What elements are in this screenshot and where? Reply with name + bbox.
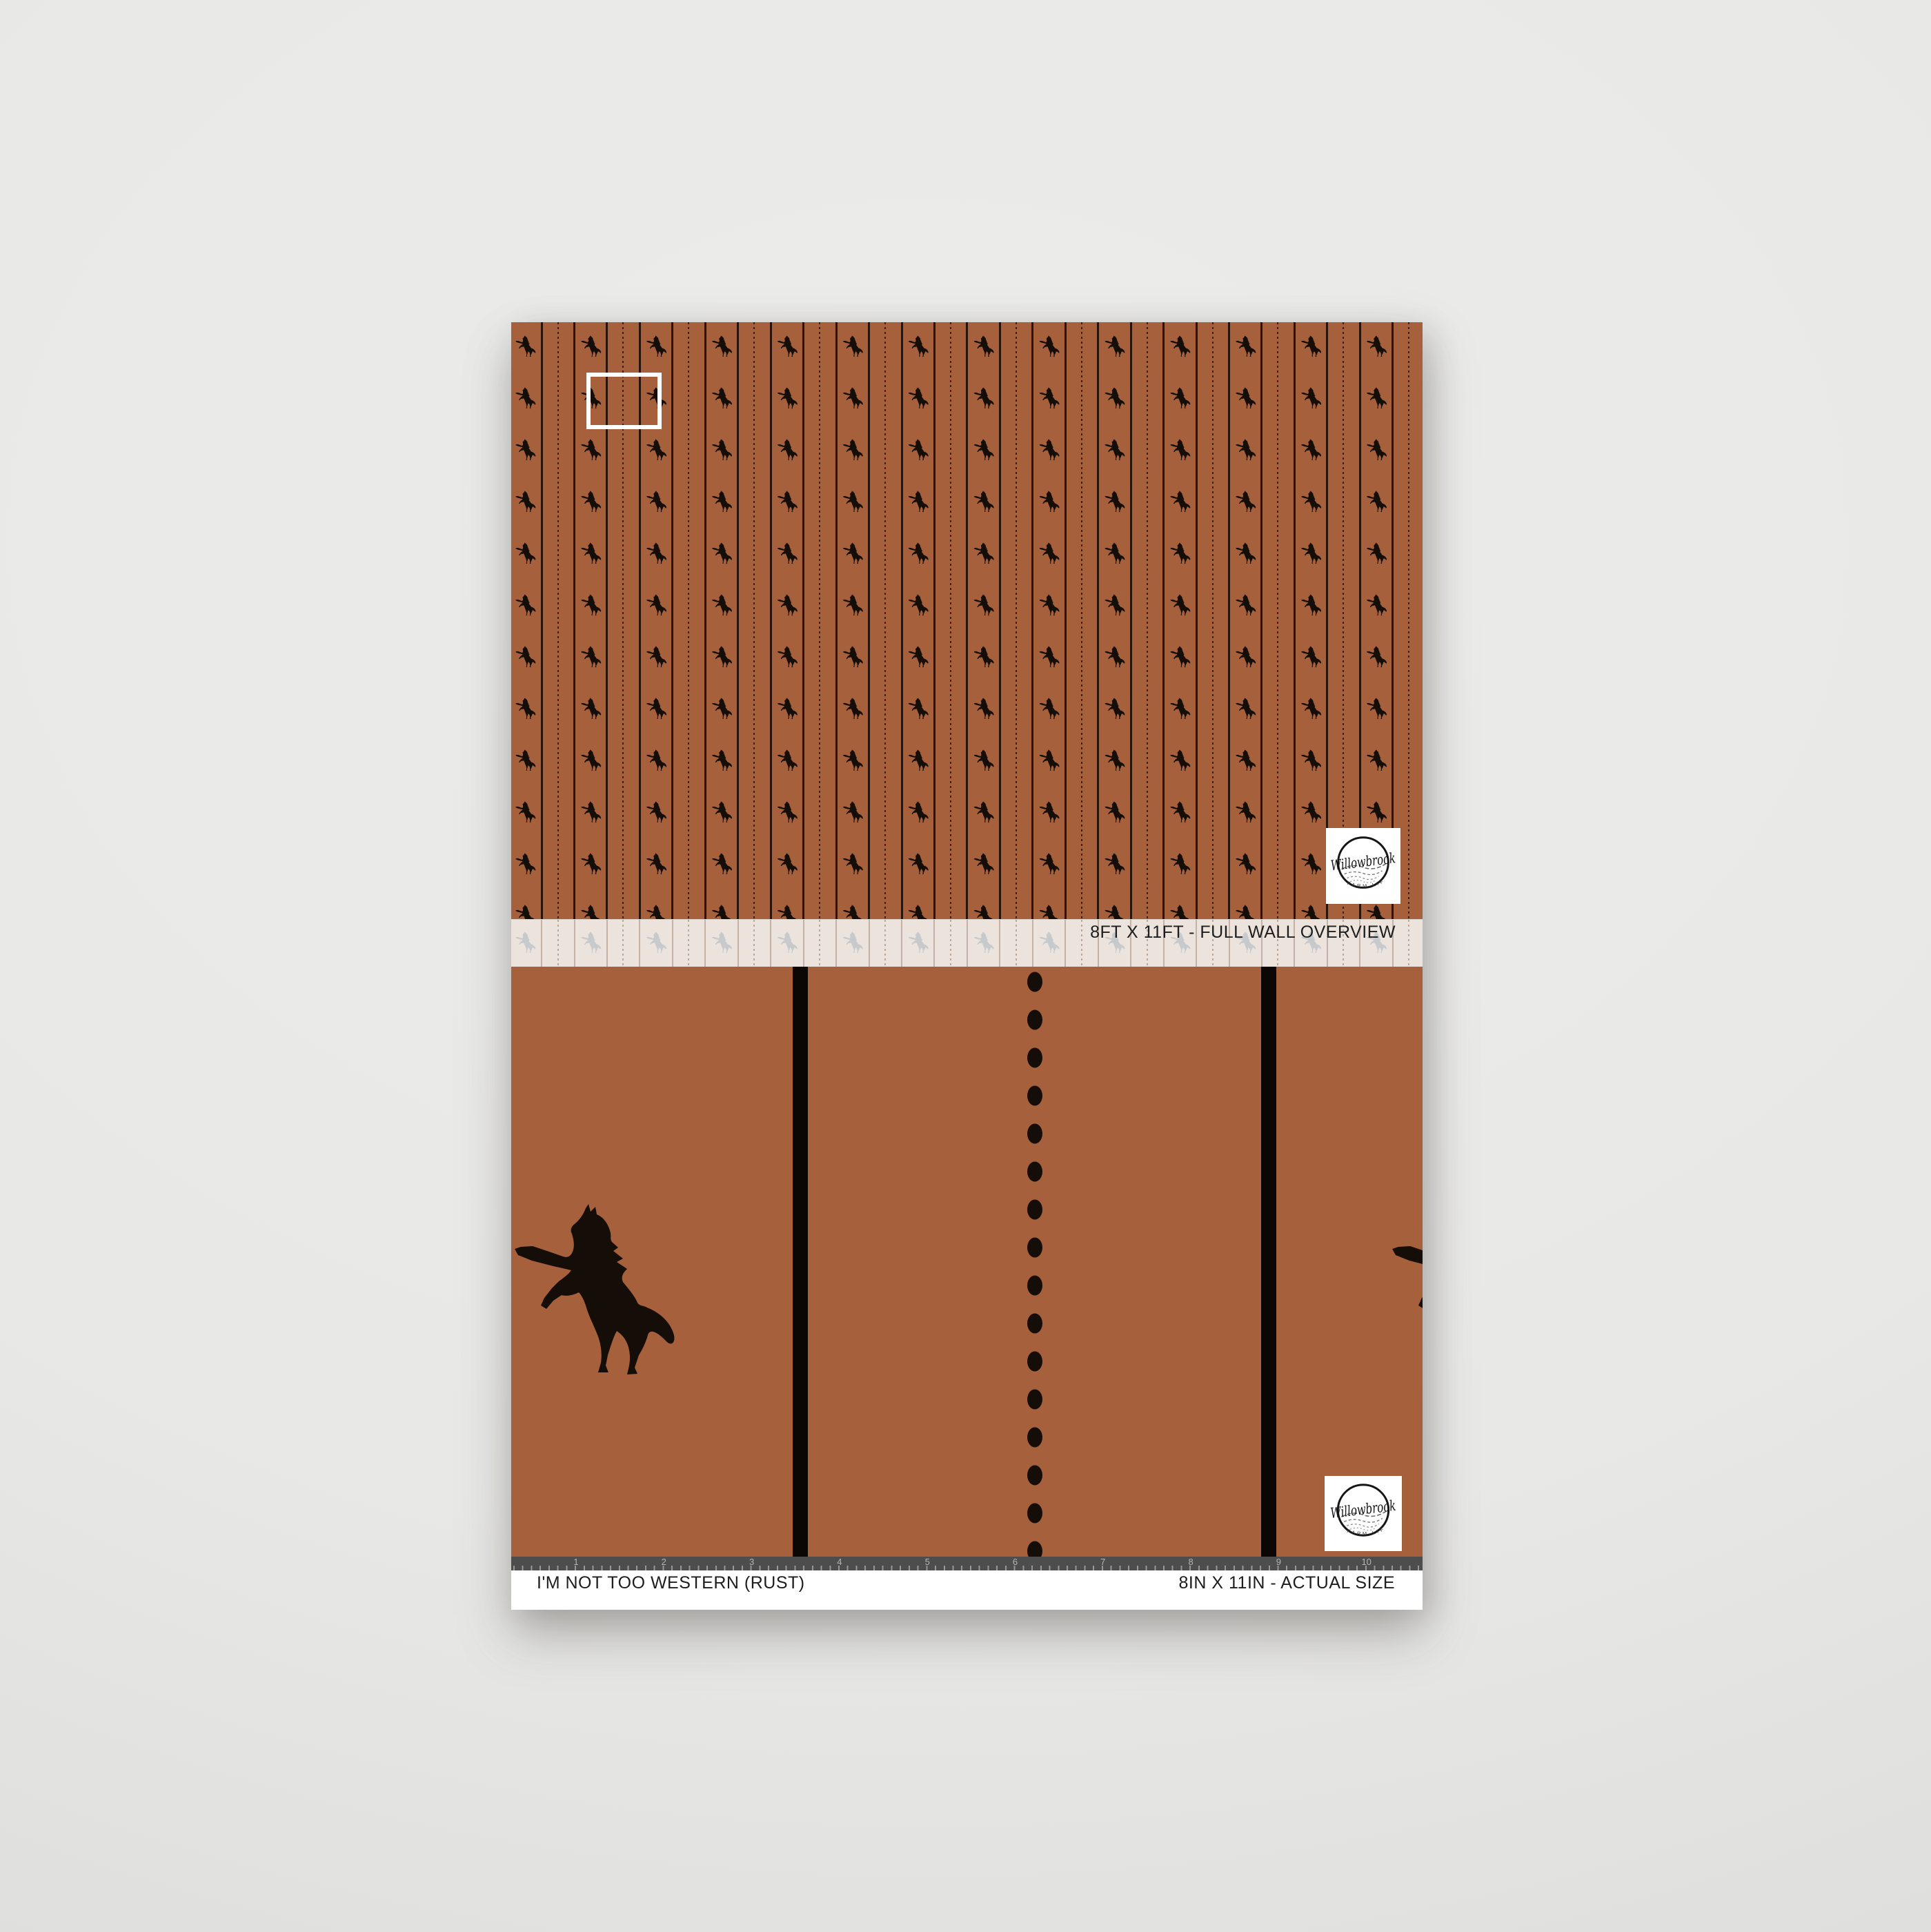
horse-icon — [1301, 646, 1321, 667]
horse-icon — [515, 646, 535, 667]
horse-icon — [581, 439, 601, 460]
actual-size-motifs — [511, 967, 1423, 1557]
horse-icon — [974, 491, 994, 512]
horse-icon — [1105, 491, 1125, 512]
horse-icon — [843, 853, 863, 874]
horse-icon — [909, 542, 929, 564]
horse-icon — [646, 594, 666, 615]
horse-icon — [974, 387, 994, 408]
horse-icon — [1040, 646, 1060, 667]
horse-icon — [646, 646, 666, 667]
horse-icon — [515, 594, 535, 615]
horse-icon — [515, 491, 535, 512]
ruler-number: 1 — [573, 1557, 578, 1566]
horse-icon — [515, 801, 535, 822]
horse-icon — [712, 646, 732, 667]
horse-icon — [646, 801, 666, 822]
horse-icon — [843, 646, 863, 667]
horse-icon — [843, 905, 863, 919]
horse-icon — [1236, 853, 1256, 874]
polka-dot — [1027, 1238, 1042, 1258]
polka-dot — [1027, 1010, 1042, 1030]
horse-icon — [1301, 749, 1321, 771]
full-wall-overview-panel — [511, 322, 1423, 919]
polka-dot — [1027, 1352, 1042, 1372]
horse-icon — [778, 387, 798, 408]
polka-dot — [1027, 1314, 1042, 1334]
horse-icon — [1040, 387, 1060, 408]
horse-icon — [712, 594, 732, 615]
horse-icon — [1040, 491, 1060, 512]
ghost-horse-icon — [646, 931, 666, 953]
horse-icon — [1301, 387, 1321, 408]
horse-icon — [843, 594, 863, 615]
horse-icon — [1040, 594, 1060, 615]
horse-icon — [909, 853, 929, 874]
horse-icon — [843, 439, 863, 460]
horse-icon — [646, 542, 666, 564]
ruler-number: 6 — [1013, 1557, 1018, 1566]
horse-icon — [1040, 439, 1060, 460]
horse-icon — [646, 335, 666, 357]
horse-icon — [909, 439, 929, 460]
ruler-number: 4 — [837, 1557, 842, 1566]
horse-icon — [843, 335, 863, 357]
horse-icon — [581, 801, 601, 822]
horse-icon — [1367, 646, 1387, 667]
horse-icon — [581, 749, 601, 771]
polka-dot — [1027, 1504, 1042, 1524]
horse-icon — [1170, 387, 1190, 408]
horse-icon — [1367, 542, 1387, 564]
polka-dot — [1027, 1428, 1042, 1448]
horse-icon — [581, 491, 601, 512]
horse-icon — [1367, 439, 1387, 460]
horse-icon — [778, 646, 798, 667]
horse-icon — [1170, 749, 1190, 771]
overview-caption: 8FT X 11FT - FULL WALL OVERVIEW — [1090, 922, 1396, 943]
horse-icon — [974, 542, 994, 564]
horse-icon — [646, 439, 666, 460]
horse-icon — [1301, 853, 1321, 874]
wallpaper-sample-sheet: 8FT X 11FT - FULL WALL OVERVIEW 12345678… — [511, 322, 1423, 1609]
horse-icon — [778, 491, 798, 512]
horse-icon — [646, 853, 666, 874]
polka-dot — [1027, 1200, 1042, 1220]
ruler-number: 3 — [749, 1557, 754, 1566]
horse-icon — [974, 801, 994, 822]
ghost-horse-icon — [581, 931, 601, 953]
ruler-number: 10 — [1361, 1557, 1371, 1566]
overview-caption-strip: 8FT X 11FT - FULL WALL OVERVIEW — [511, 919, 1423, 967]
ruler-number: 9 — [1276, 1557, 1281, 1566]
horse-icon — [581, 853, 601, 874]
horse-icon — [843, 749, 863, 771]
horse-icon — [1040, 853, 1060, 874]
horse-icon — [1170, 491, 1190, 512]
horse-icon — [974, 439, 994, 460]
horse-icon — [843, 801, 863, 822]
horse-icon — [1236, 335, 1256, 357]
horse-icon — [646, 905, 666, 919]
horse-icon — [1170, 439, 1190, 460]
horse-icon — [1040, 749, 1060, 771]
horse-icon — [1170, 905, 1190, 919]
horse-icon — [1040, 801, 1060, 822]
horse-icon — [712, 749, 732, 771]
horse-icon — [1105, 335, 1125, 357]
horse-icon — [1105, 387, 1125, 408]
ghost-horse-icon — [515, 931, 535, 953]
horse-icon — [1105, 646, 1125, 667]
horse-icon — [1367, 594, 1387, 615]
horse-icon — [712, 335, 732, 357]
horse-icon — [1170, 698, 1190, 719]
ghost-horse-icon — [712, 931, 732, 953]
horse-icon — [1301, 905, 1321, 919]
actual-size-panel — [511, 967, 1423, 1557]
horse-icon — [515, 698, 535, 719]
ruler-number: 8 — [1188, 1557, 1193, 1566]
ghost-horse-icon — [778, 931, 798, 953]
horse-icon — [712, 905, 732, 919]
horse-icon — [515, 749, 535, 771]
polka-dot — [1027, 1048, 1042, 1068]
horse-icon — [712, 853, 732, 874]
horse-icon — [1105, 905, 1125, 919]
horse-icon — [1236, 491, 1256, 512]
horse-icon — [712, 387, 732, 408]
horse-icon — [712, 491, 732, 512]
ghost-horse-icon — [909, 931, 929, 953]
horse-icon — [1367, 387, 1387, 408]
pattern-name-label: I'M NOT TOO WESTERN (RUST) — [537, 1573, 805, 1593]
horse-icon — [778, 542, 798, 564]
horse-icon — [909, 698, 929, 719]
polka-dot — [1027, 1276, 1042, 1296]
horse-icon — [1170, 594, 1190, 615]
horse-icon — [1301, 491, 1321, 512]
backdrop: 8FT X 11FT - FULL WALL OVERVIEW 12345678… — [0, 0, 1931, 1932]
horse-icon — [974, 335, 994, 357]
horse-icon — [1236, 594, 1256, 615]
horse-icon — [1236, 698, 1256, 719]
horse-icon — [1367, 905, 1387, 919]
horse-icon — [515, 335, 535, 357]
horse-icon — [581, 594, 601, 615]
actual-size-label: 8IN X 11IN - ACTUAL SIZE — [1179, 1573, 1395, 1593]
horse-icon — [1105, 749, 1125, 771]
horse-icon — [778, 439, 798, 460]
horse-icon — [974, 749, 994, 771]
horse-icon — [1301, 439, 1321, 460]
horse-icon — [1105, 439, 1125, 460]
horse-icon — [778, 801, 798, 822]
horse-icon — [974, 853, 994, 874]
horse-icon-large-clipped — [1392, 1204, 1423, 1374]
horse-icon — [1301, 542, 1321, 564]
horse-icon — [1236, 439, 1256, 460]
scale-indicator-rect — [586, 373, 662, 429]
polka-dot — [1027, 1466, 1042, 1486]
polka-dot — [1027, 1124, 1042, 1144]
horse-icon — [1236, 905, 1256, 919]
ruler-number: 7 — [1100, 1557, 1105, 1566]
horse-icon — [1236, 646, 1256, 667]
willowbrook-logo-badge — [1326, 828, 1400, 904]
ghost-horse-icon — [843, 931, 863, 953]
horse-icon — [1301, 698, 1321, 719]
horse-icon — [843, 698, 863, 719]
horse-icon — [712, 439, 732, 460]
horse-icon — [974, 646, 994, 667]
horse-icon — [1367, 801, 1387, 822]
polka-dot — [1027, 1086, 1042, 1106]
horse-icon — [974, 698, 994, 719]
horse-icon — [712, 542, 732, 564]
horse-icon — [778, 853, 798, 874]
horse-icon — [1040, 335, 1060, 357]
horse-icon — [1236, 749, 1256, 771]
ghost-horse-icon — [1040, 931, 1060, 953]
horse-icon — [1105, 801, 1125, 822]
ghost-horse-icon — [974, 931, 994, 953]
horse-icon — [909, 801, 929, 822]
horse-icon — [1170, 542, 1190, 564]
ruler-number: 2 — [662, 1557, 666, 1566]
willowbrook-logo-badge — [1325, 1476, 1402, 1551]
horse-icon — [646, 491, 666, 512]
horse-icon — [1105, 698, 1125, 719]
horse-icon — [843, 491, 863, 512]
horse-icon — [909, 646, 929, 667]
horse-icon — [581, 905, 601, 919]
horse-icon — [581, 646, 601, 667]
polka-dot — [1027, 1541, 1042, 1557]
inch-ruler: 12345678910 — [511, 1557, 1423, 1570]
horse-icon — [1040, 905, 1060, 919]
horse-icon — [778, 749, 798, 771]
horse-icon — [646, 749, 666, 771]
horse-icon — [909, 749, 929, 771]
horse-icon — [712, 801, 732, 822]
horse-icon — [515, 439, 535, 460]
horse-icon — [1367, 749, 1387, 771]
horse-icon — [1301, 594, 1321, 615]
horse-icon — [646, 698, 666, 719]
horse-icon — [1170, 646, 1190, 667]
horse-icon — [974, 905, 994, 919]
horse-icon — [909, 905, 929, 919]
horse-icon — [1170, 335, 1190, 357]
horse-icon — [909, 491, 929, 512]
horse-icon — [1236, 542, 1256, 564]
horse-icon — [843, 542, 863, 564]
horse-icon — [1105, 853, 1125, 874]
horse-icon — [778, 594, 798, 615]
horse-icon — [1040, 542, 1060, 564]
horse-icon — [843, 387, 863, 408]
horse-icon — [1105, 594, 1125, 615]
horse-icon — [909, 335, 929, 357]
horse-icon-large — [515, 1204, 674, 1374]
horse-icon — [1236, 387, 1256, 408]
polka-dot — [1027, 1162, 1042, 1182]
polka-dot — [1027, 972, 1042, 992]
horse-icon — [1170, 853, 1190, 874]
horse-icon — [1367, 698, 1387, 719]
ruler-number: 5 — [925, 1557, 930, 1566]
horse-icon — [515, 853, 535, 874]
horse-icon — [778, 335, 798, 357]
horse-icon — [1301, 335, 1321, 357]
horse-icon — [515, 387, 535, 408]
horse-icon — [1105, 542, 1125, 564]
horse-icon — [515, 905, 535, 919]
horse-icon — [1170, 801, 1190, 822]
caption-bar: I'M NOT TOO WESTERN (RUST) 8IN X 11IN - … — [511, 1570, 1423, 1610]
horse-icon — [1301, 801, 1321, 822]
horse-icon — [1236, 801, 1256, 822]
horse-icon — [1367, 335, 1387, 357]
horse-icon — [909, 594, 929, 615]
horse-icon — [515, 542, 535, 564]
horse-icon — [712, 698, 732, 719]
horse-icon — [1367, 491, 1387, 512]
horse-icon — [581, 335, 601, 357]
polka-dot — [1027, 1390, 1042, 1410]
horse-icon — [581, 542, 601, 564]
horse-icon — [778, 698, 798, 719]
horse-icon — [581, 698, 601, 719]
horse-icon — [778, 905, 798, 919]
horse-icon — [909, 387, 929, 408]
horse-icon — [974, 594, 994, 615]
horse-icon — [1040, 698, 1060, 719]
